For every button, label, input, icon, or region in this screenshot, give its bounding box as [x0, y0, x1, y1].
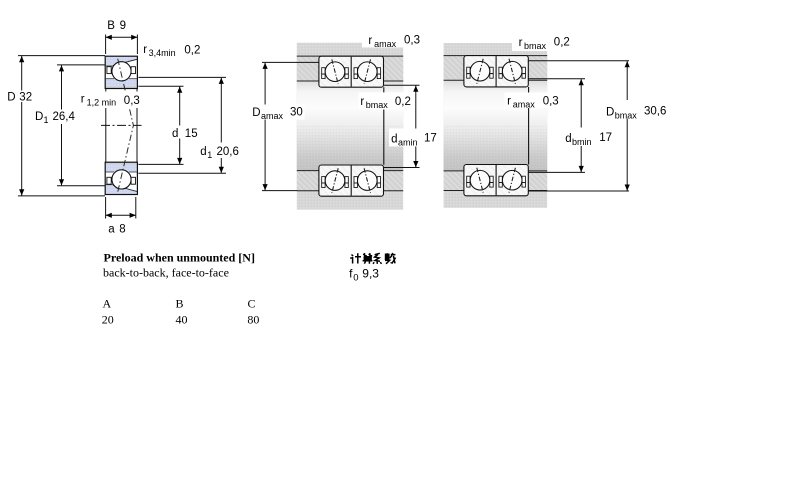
svg-text:bmax: bmax: [615, 110, 638, 120]
svg-text:Preload when unmounted [N]: Preload when unmounted [N]: [104, 251, 255, 265]
svg-text:r: r: [368, 35, 372, 47]
svg-text:d: d: [565, 133, 571, 145]
svg-text:0,3: 0,3: [124, 95, 140, 107]
svg-text:d: d: [391, 133, 397, 145]
svg-text:r: r: [143, 44, 147, 56]
svg-text:A: A: [103, 297, 112, 311]
svg-text:amax: amax: [513, 100, 536, 110]
svg-text:d: d: [172, 128, 178, 140]
svg-text:17: 17: [599, 132, 612, 144]
svg-text:0,3: 0,3: [404, 35, 420, 47]
svg-text:3,4min: 3,4min: [149, 48, 176, 58]
svg-text:40: 40: [176, 313, 188, 327]
svg-text:0: 0: [353, 272, 358, 283]
svg-text:80: 80: [247, 313, 259, 327]
svg-text:d: d: [200, 146, 206, 158]
svg-text:a: a: [108, 224, 115, 236]
svg-text:amax: amax: [374, 39, 397, 49]
svg-text:1: 1: [207, 150, 212, 160]
svg-text:r: r: [360, 96, 364, 108]
svg-text:bmax: bmax: [366, 100, 389, 110]
svg-text:B: B: [176, 297, 184, 311]
svg-text:0,2: 0,2: [184, 44, 200, 56]
svg-text:20,6: 20,6: [217, 146, 239, 158]
svg-text:r: r: [81, 93, 85, 105]
svg-text:0,2: 0,2: [554, 37, 570, 49]
svg-text:9: 9: [120, 20, 126, 32]
svg-text:back-to-back, face-to-face: back-to-back, face-to-face: [103, 266, 229, 280]
svg-text:0,3: 0,3: [543, 95, 559, 107]
svg-text:B: B: [107, 20, 115, 32]
svg-text:32: 32: [19, 92, 32, 104]
svg-text:amin: amin: [398, 137, 418, 147]
svg-text:D: D: [252, 107, 260, 119]
svg-text:D: D: [35, 111, 43, 123]
svg-text:1: 1: [44, 115, 49, 125]
svg-text:30: 30: [290, 107, 303, 119]
svg-text:9,3: 9,3: [362, 267, 379, 281]
svg-text:bmax: bmax: [524, 41, 547, 51]
svg-text:17: 17: [424, 133, 437, 145]
svg-text:D: D: [606, 106, 614, 118]
svg-text:20: 20: [102, 313, 114, 327]
svg-text:bmin: bmin: [572, 137, 592, 147]
svg-text:26,4: 26,4: [53, 111, 76, 123]
svg-text:amax: amax: [261, 111, 284, 121]
svg-text:D: D: [7, 92, 15, 104]
svg-text:C: C: [248, 297, 256, 311]
svg-text:0,2: 0,2: [395, 96, 411, 108]
svg-text:r: r: [519, 37, 523, 49]
svg-text:15: 15: [185, 128, 198, 140]
svg-text:r: r: [507, 96, 511, 108]
svg-text:1,2 min: 1,2 min: [87, 98, 117, 108]
svg-text:8: 8: [119, 224, 125, 236]
svg-text:30,6: 30,6: [644, 106, 666, 118]
